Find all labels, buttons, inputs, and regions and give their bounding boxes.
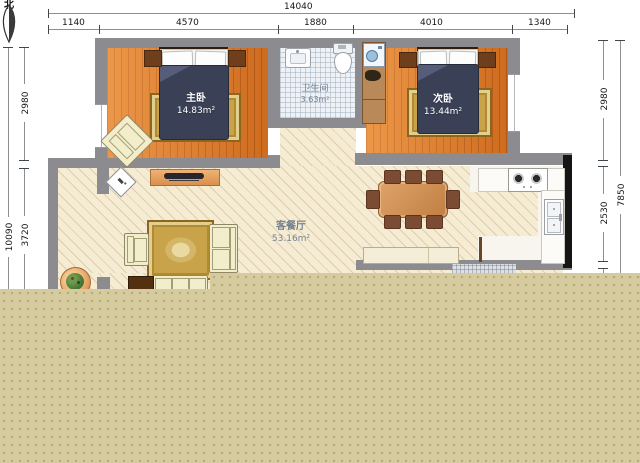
dim-top-seg1: 1140	[60, 18, 87, 28]
dim-top-overall: 14040	[282, 2, 315, 12]
washing-machine	[363, 43, 385, 67]
floorplan: 主卧 14.83m² 卫生间 3.63m² 次卧 13.44m	[0, 0, 640, 463]
sofa	[209, 224, 238, 273]
stove	[508, 168, 548, 192]
dining-table	[378, 181, 448, 218]
dim-left-seg2: 3720	[21, 216, 31, 254]
lower-wall-stub	[97, 277, 110, 289]
bathroom-bottom-wall	[268, 118, 366, 128]
cabinet-edge	[479, 237, 482, 262]
dim-left-overall: 10090	[5, 217, 15, 257]
dim-top-seg2: 4570	[174, 18, 201, 28]
burner	[531, 173, 542, 184]
tv	[164, 173, 204, 179]
dining-chair	[405, 215, 422, 229]
north-compass: 北	[0, 0, 22, 44]
living-top-connector-wall	[48, 158, 107, 168]
dining-chair	[384, 170, 401, 184]
nightstand	[228, 50, 246, 67]
dining-chair	[405, 170, 422, 184]
living-left-wall	[48, 158, 58, 290]
second-bedroom-window	[508, 74, 520, 132]
dim-right-seg2: 2530	[600, 194, 610, 232]
dining-chair	[426, 170, 443, 184]
wardrobe	[362, 42, 386, 124]
dim-left-seg1: 2980	[21, 84, 31, 122]
dining-chair	[366, 190, 380, 209]
dim-top-overall-line	[48, 13, 575, 14]
master-left-wall	[95, 38, 107, 168]
nightstand	[478, 52, 496, 68]
dining-chair	[446, 190, 460, 209]
bed-duvet	[159, 65, 229, 140]
dim-top-seg4: 4010	[418, 18, 445, 28]
overlay-block-left	[0, 289, 210, 463]
bathroom-sink	[285, 48, 311, 68]
second-bed	[417, 47, 478, 132]
bedroom-living-wall	[355, 153, 572, 165]
kitchen-sink	[544, 199, 564, 235]
dim-right-seg1: 2980	[600, 80, 610, 118]
burner	[513, 173, 524, 184]
toilet	[332, 43, 352, 73]
bed-duvet	[417, 64, 479, 134]
dim-right-overall: 7850	[617, 176, 627, 214]
hallway-floor	[280, 126, 356, 168]
sideboard-bench	[363, 247, 459, 264]
master-right-wall	[268, 38, 280, 128]
nightstand	[144, 50, 162, 67]
dining-chair	[426, 215, 443, 229]
dining-chair	[384, 215, 401, 229]
armchair	[124, 233, 149, 266]
nightstand	[399, 52, 417, 68]
dim-top-seg3: 1880	[302, 18, 329, 28]
overlay-block-right	[210, 273, 640, 463]
master-bed	[159, 47, 228, 138]
dim-top-seg5: 1340	[526, 18, 553, 28]
living-room-rug	[147, 220, 214, 280]
tv-console	[150, 169, 220, 186]
